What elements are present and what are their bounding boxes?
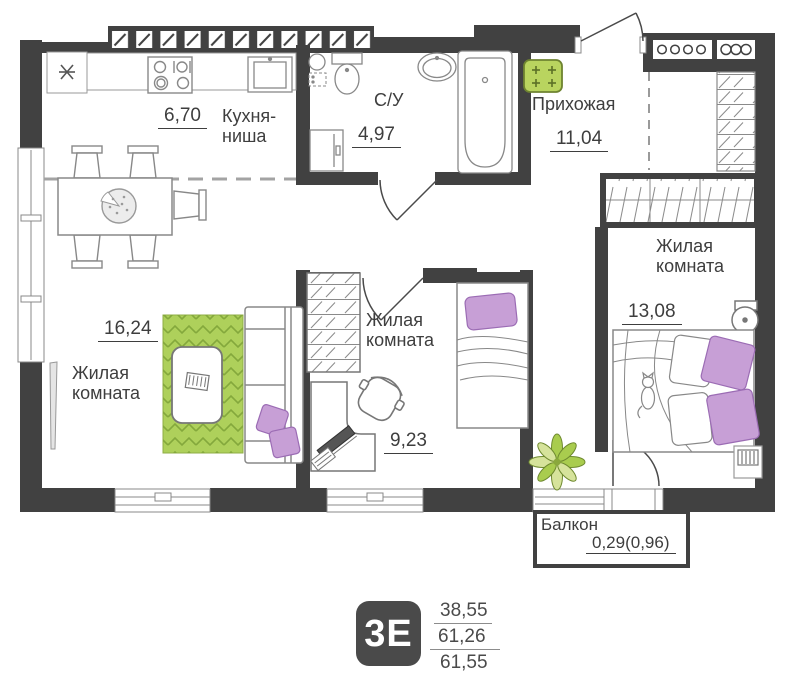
single-bed: [457, 283, 528, 428]
balcony-area: 0,29(0,96): [586, 533, 676, 554]
dining-set: [58, 146, 206, 268]
window-bottom-living: [115, 489, 210, 512]
apartment-type-badge: 3Е: [356, 601, 421, 666]
radiator-room13: [734, 446, 762, 478]
living-middle-label: Жилая комната: [366, 310, 452, 350]
pillow: [464, 292, 517, 330]
wall-kitchen-bath: [296, 45, 310, 185]
stove: [148, 57, 192, 93]
bathroom-label: С/У: [374, 90, 403, 110]
hallway-area: 11,04: [550, 128, 608, 152]
white-pillow: [668, 392, 713, 446]
window-bottom-room9: [327, 489, 423, 512]
chair: [128, 146, 158, 178]
fan: [732, 301, 758, 333]
hallway-label: Прихожая: [532, 94, 615, 114]
wall-top-left: [42, 42, 110, 53]
balcony-label: Балкон: [541, 515, 598, 534]
bathroom-door: [380, 180, 437, 220]
wall-room13-left: [595, 227, 608, 452]
bathroom-area: 4,97: [352, 124, 401, 148]
wall-top-hatched-band: [108, 26, 374, 53]
area-no-balcony-value: 61,26: [430, 625, 514, 648]
double-bed: [613, 330, 760, 452]
living-right-label: Жилая комната: [656, 236, 742, 276]
water-heater: [309, 54, 326, 86]
living-middle-area: 9,23: [384, 430, 433, 454]
toilet: [332, 53, 362, 94]
wall-bottom-4: [663, 488, 775, 512]
riser-divider: [712, 40, 717, 59]
wall-right: [755, 33, 775, 512]
riser-bottom-band: [643, 59, 755, 72]
wardrobe-room9: [307, 273, 360, 372]
chair: [72, 235, 102, 268]
chair: [128, 235, 158, 268]
kitchen-sink: [248, 57, 292, 92]
entrance-door: [581, 13, 643, 41]
hall-closet: [717, 72, 755, 171]
wall-bath-bottom-left: [296, 172, 378, 185]
divider: [434, 623, 492, 624]
kitchen-label: Кухня-ниша: [222, 106, 296, 146]
kitchen-fixtures: [47, 52, 296, 93]
bath-sink: [418, 53, 456, 81]
wall-room9-top-thick: [423, 268, 477, 283]
divider: [430, 649, 500, 650]
wall-top-bath: [372, 37, 476, 53]
chair: [72, 146, 102, 178]
window-left: [18, 148, 44, 362]
riser-box-1: [653, 40, 712, 59]
living-main-area: 16,24: [98, 318, 158, 342]
wall-top-thick: [474, 25, 580, 53]
wall-bath-bottom-right: [435, 172, 531, 185]
purple-pillow: [706, 388, 760, 445]
radiator-left: [50, 362, 57, 449]
chair: [174, 190, 206, 220]
total-area-value: 61,55: [430, 651, 514, 674]
bathroom-fixtures: [309, 51, 512, 173]
floor-plan-page: 6,70 Кухня-ниша С/У 4,97 Прихожая 11,04 …: [0, 0, 800, 687]
coffee-table: [172, 347, 222, 423]
riser-shafts: [653, 40, 755, 59]
area-summary: 38,55 61,26 61,55: [430, 599, 514, 674]
living-right-area: 13,08: [622, 301, 682, 325]
wall-top-right: [643, 33, 755, 41]
plant: [529, 434, 585, 490]
bedroom-right-furniture: [613, 301, 762, 478]
wall-bottom-3: [423, 488, 533, 512]
washing-machine: [310, 130, 343, 171]
riser-box-2: [717, 40, 755, 59]
living-area-value: 38,55: [430, 599, 514, 622]
wall-bottom-1: [20, 488, 115, 512]
kitchen-area: 6,70: [158, 105, 207, 129]
living-main-label: Жилая комната: [72, 363, 158, 403]
entrance-mat: [524, 60, 562, 92]
hall-wardrobe: [600, 173, 760, 228]
pizza: [101, 189, 136, 223]
wall-bottom-2: [210, 488, 327, 512]
bathtub: [458, 51, 512, 173]
desk-chair: [349, 368, 411, 427]
